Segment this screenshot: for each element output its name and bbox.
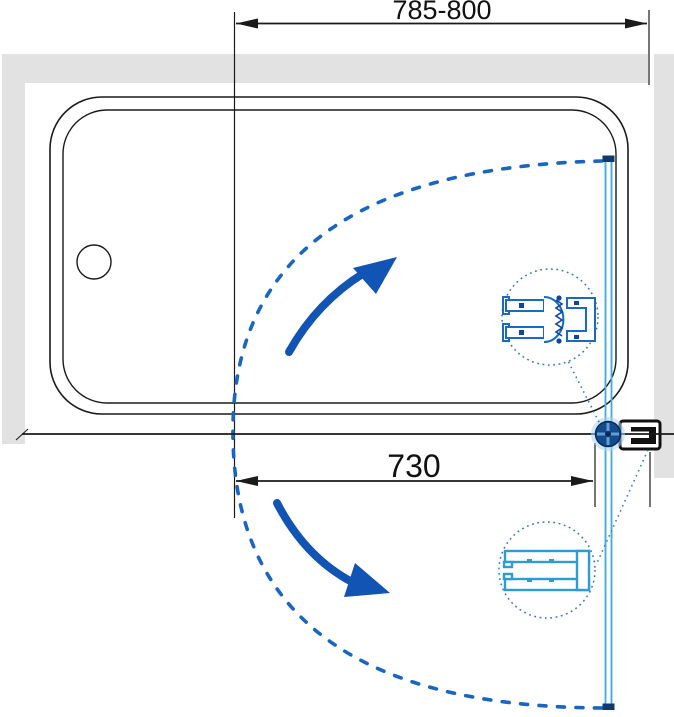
diagram-canvas: 785-800 730 xyxy=(0,0,674,717)
magnet-nub xyxy=(556,338,561,343)
detail-circle-glass-profile xyxy=(499,522,595,618)
drain-circle xyxy=(77,245,111,279)
profile-foot xyxy=(504,574,512,579)
profile-tick xyxy=(527,578,532,582)
hinge-center-dot xyxy=(605,431,611,437)
profile-tick xyxy=(549,578,554,582)
profile-arm-top xyxy=(506,300,544,311)
profile-right-bar xyxy=(577,551,589,590)
installation-diagram: 785-800 730 xyxy=(0,0,674,717)
dimension-door-width: 730 xyxy=(236,443,650,507)
arrowhead-left-icon xyxy=(236,19,258,29)
profile-tick xyxy=(574,335,579,339)
wall-right xyxy=(654,54,674,478)
detail-circle-magnet xyxy=(502,269,598,365)
profile-foot xyxy=(504,562,512,567)
pivot-hinge xyxy=(591,417,625,451)
swing-arrow-outward-head-icon xyxy=(344,563,390,597)
arrowhead-right-icon xyxy=(625,19,647,29)
arrowhead-right-icon xyxy=(571,476,593,486)
profile-tick xyxy=(574,301,579,305)
profile-arm-bottom xyxy=(506,327,544,338)
wall-top xyxy=(2,54,648,83)
swing-arrow-outward xyxy=(277,503,390,597)
profile-tick xyxy=(549,559,554,563)
glass-top-cap xyxy=(603,156,615,163)
bathtub xyxy=(50,97,628,414)
front-edge xyxy=(16,429,674,440)
profile-tick xyxy=(519,303,524,308)
profile-tick xyxy=(519,330,524,335)
magnet-nub xyxy=(556,295,561,300)
arrowhead-left-icon xyxy=(236,476,258,486)
wall-left xyxy=(2,54,25,444)
dimension-label-door-width: 730 xyxy=(387,448,440,484)
glass-bottom-cap xyxy=(603,704,615,711)
swing-arrow-outward-shaft xyxy=(277,503,352,582)
dimension-label-overall-width: 785-800 xyxy=(392,0,491,25)
profile-tick xyxy=(527,559,532,563)
wall-bracket xyxy=(620,421,660,449)
